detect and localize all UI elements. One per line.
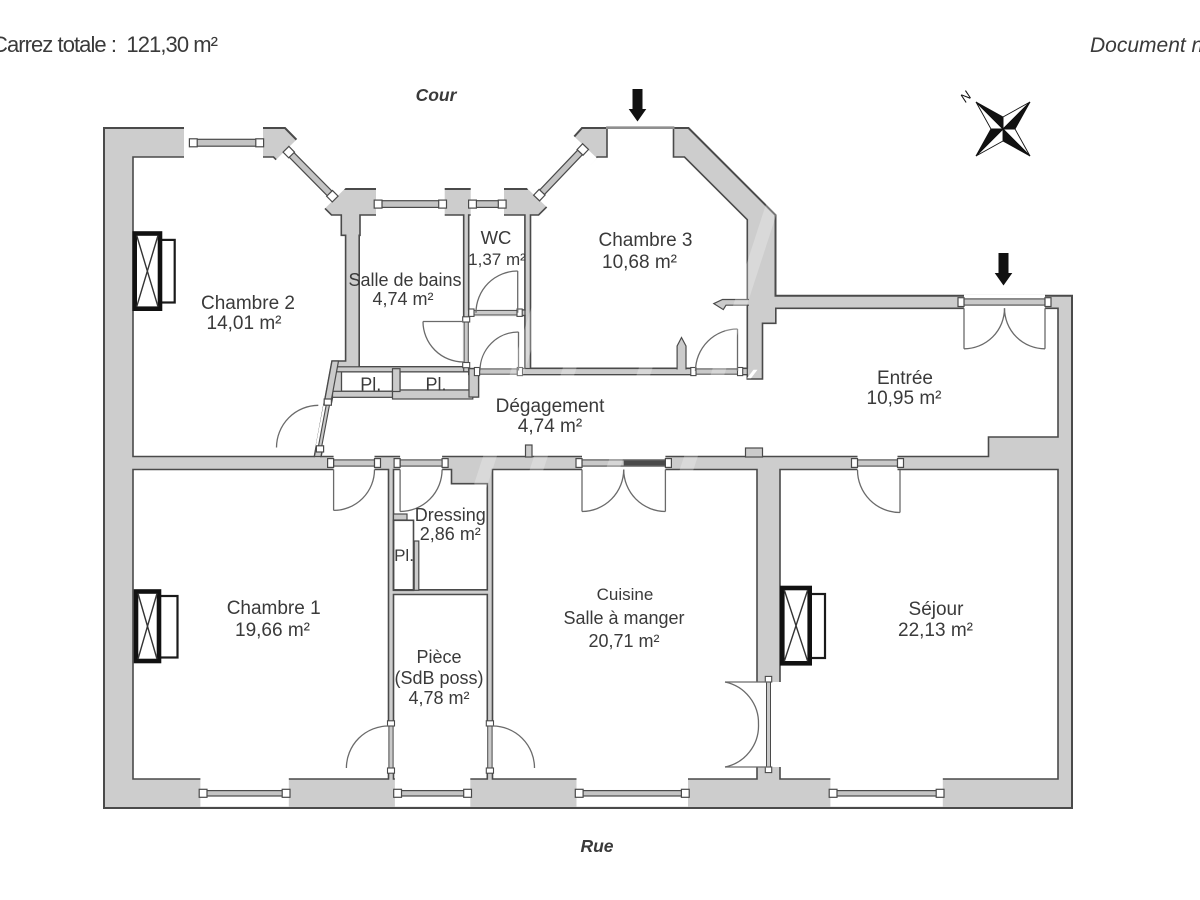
svg-text:Document non contractuel: Document non contractuel [1090, 34, 1200, 57]
svg-text:Carrez totale : 121,30 m²: Carrez totale : 121,30 m² [0, 32, 218, 57]
svg-text:Séjour: Séjour [909, 599, 965, 620]
svg-text:10,95 m²: 10,95 m² [867, 388, 942, 409]
svg-text:Chambre 2: Chambre 2 [201, 293, 295, 314]
svg-text:22,13 m²: 22,13 m² [898, 620, 973, 641]
svg-text:Pl.: Pl. [425, 375, 446, 395]
svg-text:Chambre 1: Chambre 1 [227, 598, 321, 619]
svg-text:4,74 m²: 4,74 m² [518, 416, 582, 437]
svg-text:Dressing: Dressing [415, 505, 486, 525]
svg-text:19,66 m²: 19,66 m² [235, 620, 310, 641]
svg-text:Pl.: Pl. [360, 375, 381, 395]
svg-text:Rue: Rue [580, 836, 613, 856]
svg-text:Pièce: Pièce [416, 647, 461, 667]
svg-text:Dégagement: Dégagement [496, 396, 606, 417]
svg-text:14,01 m²: 14,01 m² [207, 313, 282, 334]
svg-text:(SdB poss): (SdB poss) [394, 668, 483, 688]
svg-text:2,86 m²: 2,86 m² [420, 524, 481, 544]
svg-text:20,71 m²: 20,71 m² [588, 631, 659, 651]
svg-text:4,74 m²: 4,74 m² [372, 289, 433, 309]
svg-text:10,68 m²: 10,68 m² [602, 252, 677, 273]
svg-text:1,37 m²: 1,37 m² [468, 250, 526, 269]
svg-text:Entrée: Entrée [877, 368, 933, 389]
svg-text:Chambre 3: Chambre 3 [599, 230, 693, 251]
svg-text:4,78 m²: 4,78 m² [408, 688, 469, 708]
svg-text:Salle à manger: Salle à manger [563, 608, 684, 628]
svg-text:Salle de bains: Salle de bains [348, 270, 461, 290]
svg-text:Cuisine: Cuisine [597, 585, 654, 604]
svg-text:Pl.: Pl. [394, 546, 414, 565]
svg-text:Cour: Cour [416, 85, 458, 105]
svg-text:WC: WC [481, 227, 512, 248]
